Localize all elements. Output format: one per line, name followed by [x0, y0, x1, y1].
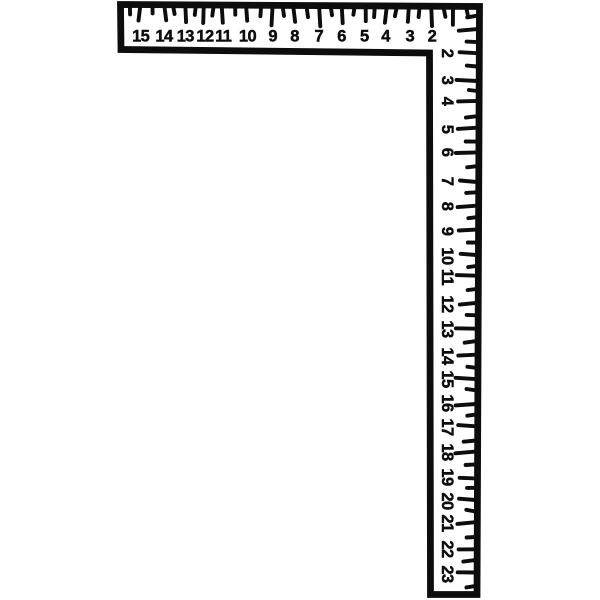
svg-text:19: 19 — [438, 468, 456, 486]
svg-text:17: 17 — [438, 418, 456, 436]
svg-text:22: 22 — [438, 540, 456, 558]
svg-text:10: 10 — [239, 28, 257, 46]
svg-text:15: 15 — [438, 370, 456, 388]
svg-text:11: 11 — [438, 269, 456, 286]
svg-text:7: 7 — [315, 28, 324, 46]
svg-text:3: 3 — [438, 76, 456, 85]
svg-text:14: 14 — [155, 28, 174, 46]
svg-text:23: 23 — [438, 565, 456, 583]
svg-text:9: 9 — [438, 227, 456, 236]
svg-text:3: 3 — [406, 28, 415, 46]
svg-text:8: 8 — [438, 202, 456, 211]
svg-text:13: 13 — [177, 28, 195, 46]
svg-text:5: 5 — [360, 28, 369, 46]
svg-text:18: 18 — [438, 443, 456, 461]
svg-text:13: 13 — [438, 320, 456, 338]
svg-text:16: 16 — [438, 394, 456, 412]
svg-text:14: 14 — [438, 347, 456, 366]
svg-text:7: 7 — [438, 177, 456, 186]
svg-text:12: 12 — [196, 28, 214, 46]
svg-text:20: 20 — [438, 492, 456, 510]
svg-text:2: 2 — [428, 28, 437, 46]
svg-text:9: 9 — [268, 28, 277, 46]
svg-text:6: 6 — [337, 28, 346, 46]
svg-text:11: 11 — [215, 28, 232, 46]
svg-text:10: 10 — [438, 247, 456, 265]
svg-text:21: 21 — [438, 514, 456, 532]
svg-text:12: 12 — [438, 295, 456, 313]
svg-text:5: 5 — [438, 125, 456, 134]
svg-text:15: 15 — [132, 28, 150, 46]
svg-text:4: 4 — [381, 28, 391, 46]
svg-text:8: 8 — [290, 28, 299, 46]
svg-text:2: 2 — [438, 49, 456, 58]
svg-text:4: 4 — [438, 97, 456, 107]
svg-text:6: 6 — [438, 148, 456, 157]
